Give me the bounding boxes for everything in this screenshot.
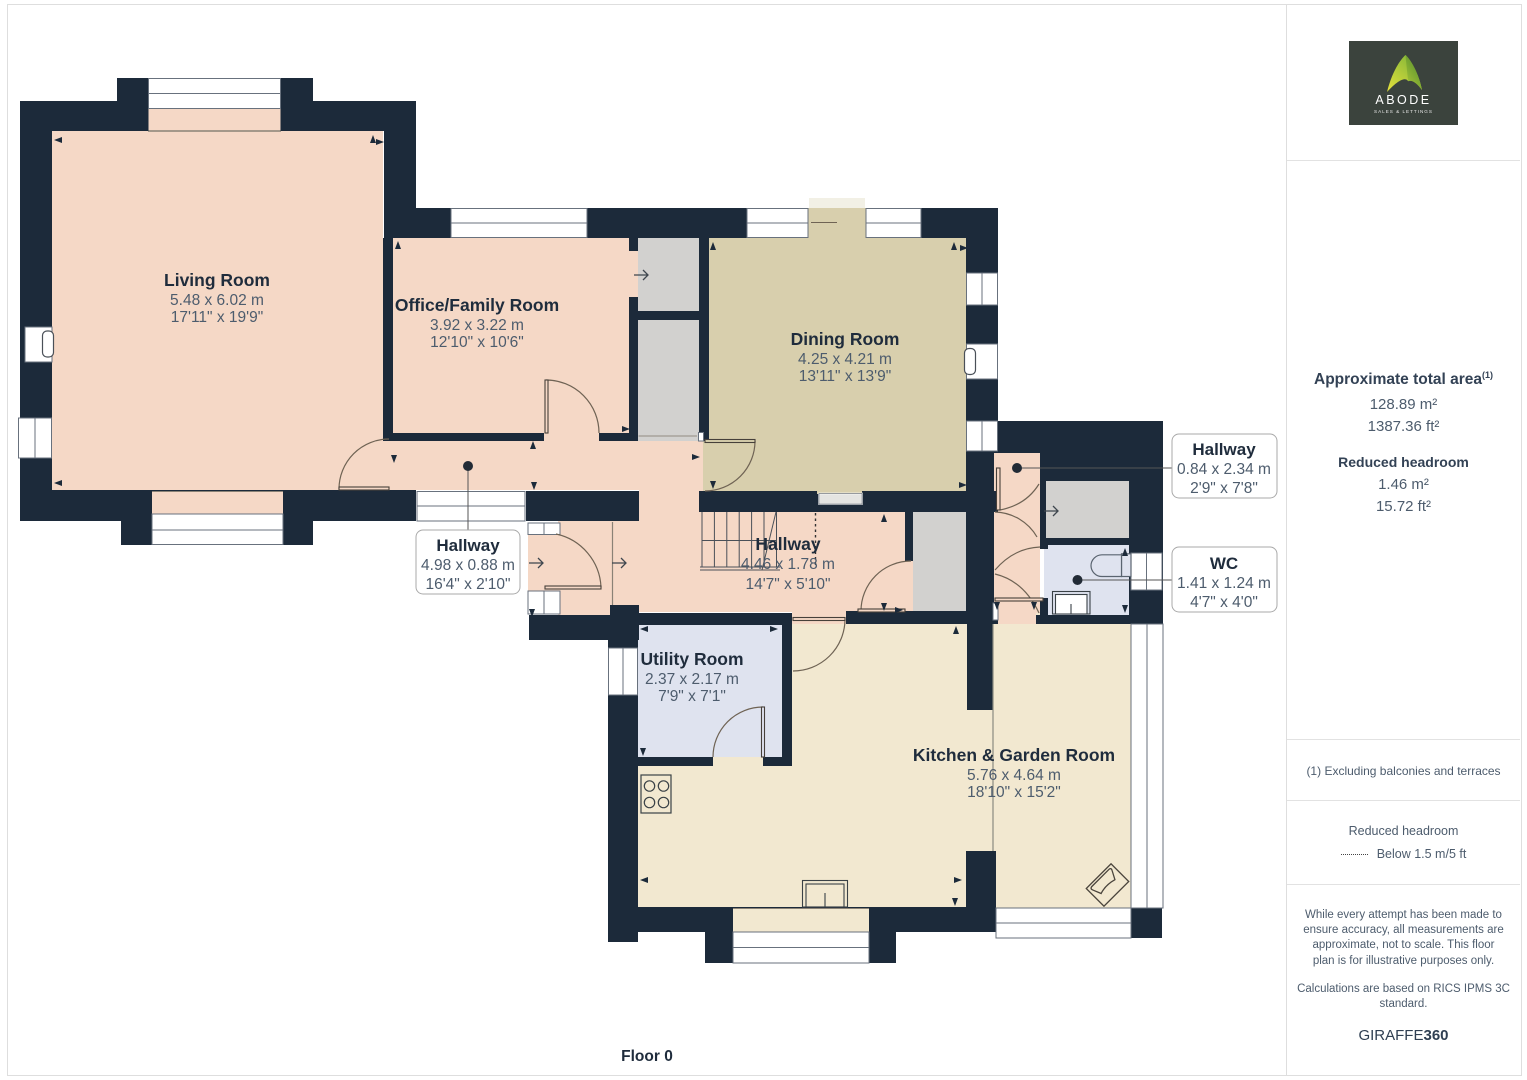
svg-text:Kitchen & Garden Room: Kitchen & Garden Room — [913, 745, 1115, 765]
svg-text:2'9" x 7'8": 2'9" x 7'8" — [1190, 480, 1258, 497]
svg-text:4.25 x 4.21 m: 4.25 x 4.21 m — [798, 351, 892, 368]
svg-text:4.98 x 0.88 m: 4.98 x 0.88 m — [421, 557, 515, 574]
svg-text:5.76 x 4.64 m: 5.76 x 4.64 m — [967, 767, 1061, 784]
svg-text:2.37 x 2.17 m: 2.37 x 2.17 m — [645, 671, 739, 688]
svg-text:16'4" x 2'10": 16'4" x 2'10" — [425, 576, 510, 593]
svg-text:0.84 x 2.34 m: 0.84 x 2.34 m — [1177, 461, 1271, 478]
svg-text:13'11" x 13'9": 13'11" x 13'9" — [799, 368, 891, 385]
svg-text:17'11" x 19'9": 17'11" x 19'9" — [171, 309, 263, 326]
svg-text:12'10" x 10'6": 12'10" x 10'6" — [430, 334, 524, 351]
svg-text:4.46 x 1.78 m: 4.46 x 1.78 m — [741, 556, 835, 573]
svg-text:Living Room: Living Room — [164, 270, 270, 290]
svg-text:4'7" x 4'0": 4'7" x 4'0" — [1190, 594, 1258, 611]
svg-text:SALES & LETTINGS: SALES & LETTINGS — [1374, 109, 1433, 114]
svg-text:Dining Room: Dining Room — [791, 329, 900, 349]
svg-text:WC: WC — [1210, 554, 1238, 573]
svg-text:Hallway: Hallway — [436, 536, 500, 555]
svg-text:Utility Room: Utility Room — [640, 649, 743, 669]
svg-text:Hallway: Hallway — [1192, 440, 1256, 459]
svg-text:ABODE: ABODE — [1375, 93, 1431, 107]
svg-text:1.41 x 1.24 m: 1.41 x 1.24 m — [1177, 575, 1271, 592]
svg-text:Hallway: Hallway — [755, 534, 820, 554]
svg-text:7'9" x 7'1": 7'9" x 7'1" — [658, 688, 726, 705]
svg-text:18'10" x 15'2": 18'10" x 15'2" — [967, 784, 1061, 801]
svg-text:14'7" x 5'10": 14'7" x 5'10" — [745, 576, 830, 593]
svg-text:Floor 0: Floor 0 — [621, 1048, 673, 1065]
svg-text:3.92 x 3.22 m: 3.92 x 3.22 m — [430, 317, 524, 334]
svg-text:Office/Family Room: Office/Family Room — [395, 295, 559, 315]
svg-text:5.48 x 6.02 m: 5.48 x 6.02 m — [170, 292, 264, 309]
